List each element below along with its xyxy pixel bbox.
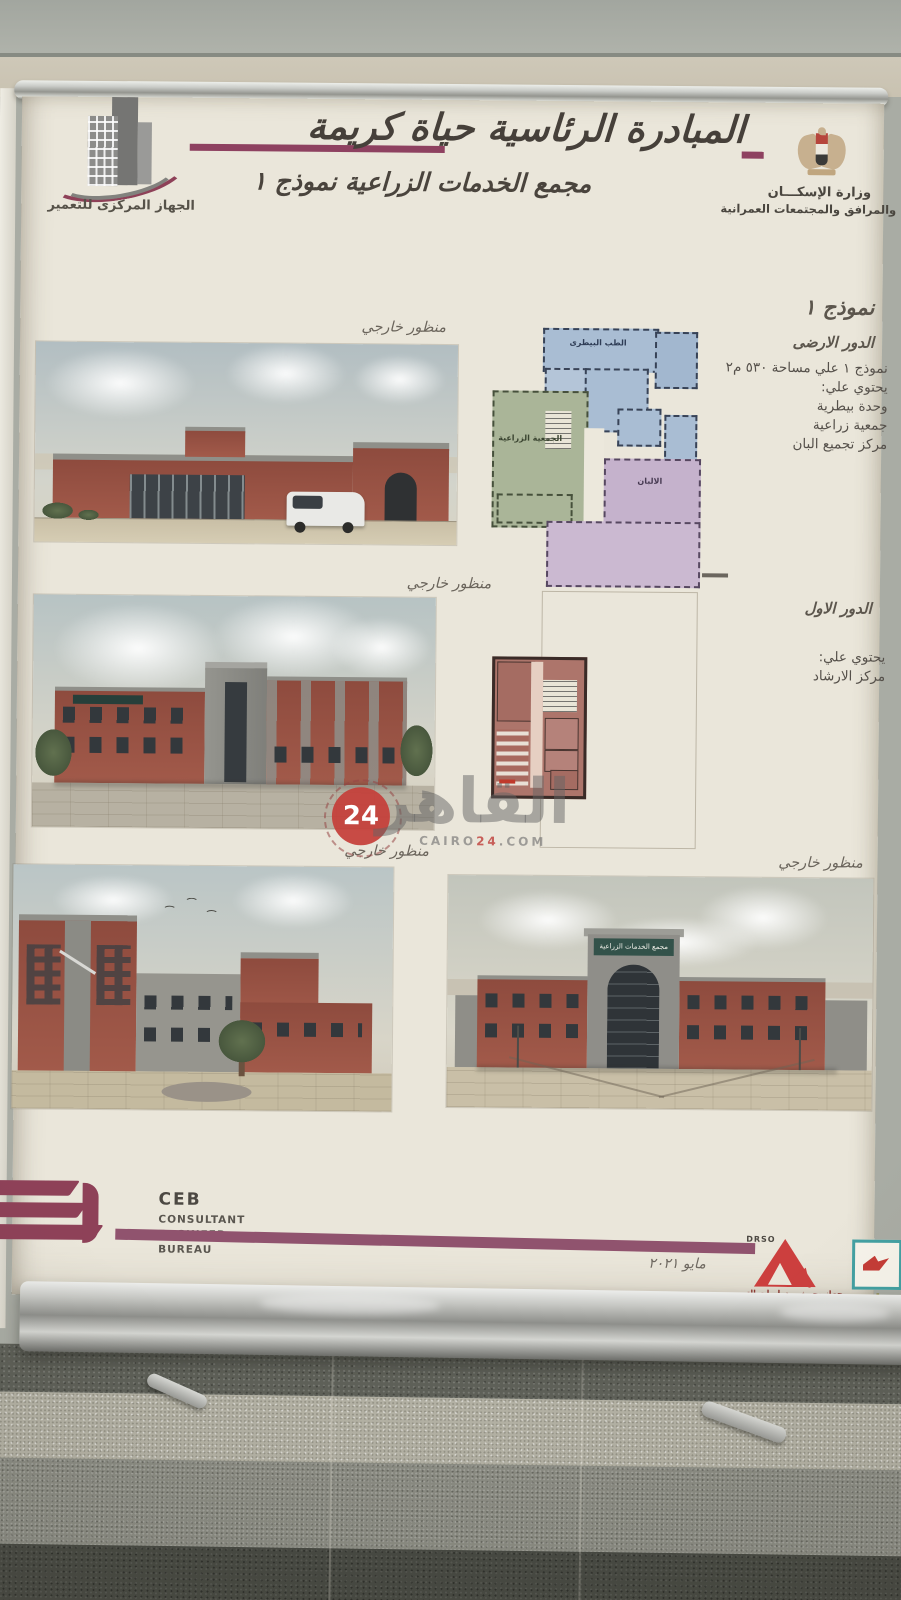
bird [205,910,218,918]
ministry-name-line1: وزارة الإسكـــان [744,185,894,201]
poster-subtitle: مجمع الخدمات الزراعية نموذج ١ [271,166,592,198]
building-sign: مجمع الخدمات الزراعية [594,938,674,956]
plan-stairs [545,411,571,449]
description-line: يحتوي علي: [738,378,888,398]
egypt-eagle-icon [793,127,849,183]
ministry-name-line2: والمرافق والمجتمعات العمرانية [732,201,896,216]
ground-floor-heading: الدور الارضى [780,333,874,352]
eagle-head [818,127,826,135]
plan-stairs [543,680,577,712]
first-floor-heading: الدور الاول [778,599,872,618]
plan-room [545,718,579,750]
plan-corridor [583,428,604,524]
domain-mid: 24 [476,834,499,848]
building-sign-band [73,695,143,705]
render-exterior-1 [34,341,458,545]
window-row [485,1023,579,1038]
cloud [233,872,353,929]
gate-arch [384,472,416,522]
plan-zone-veterinary [655,332,698,389]
render-exterior-4: مجمع الخدمات الزراعية [446,875,873,1111]
description-line: نموذج ١ علي مساحة ٥٣٠ م٢ [738,359,888,379]
poster-title: المبادرة الرئاسية حياة كريمة [414,106,747,152]
cloud [331,617,432,678]
description-line: وحدة بيطرية [737,397,887,417]
agency-name: الجهاز المركزى للتعمير [33,197,209,214]
description-line: يحتوي علي: [735,648,885,668]
hayah-bird-icon [863,1256,889,1271]
domain-left: CAIRO [419,834,476,848]
date: مايو ٢٠٢١ [635,1256,719,1273]
building-sign-text: مجمع الخدمات الزراعية [599,942,668,951]
ground-floor-plan: الطب البيطرى الجمعية الزراعية الالبان [484,315,698,587]
model-heading: نموذج ١ [786,295,874,320]
window-grid [96,945,131,1005]
perspective-label: منظور خارجي [761,855,879,872]
plan-zone-dairy [546,521,701,588]
cloud [354,354,446,405]
entrance-arch-glass [607,964,660,1068]
plan-label-veterinary: الطب البيطرى [558,338,638,348]
window-row [687,995,817,1010]
bird [163,906,176,914]
van-window [293,496,323,509]
plan-room [497,661,536,721]
agency-logo: الجهاز المركزى للتعمير [41,91,202,217]
window-grid [26,944,61,1004]
watermark-word: القاهر [392,764,571,839]
ceb-line3: BUREAU [158,1243,212,1255]
plan-zone-association [496,493,572,524]
bird [185,898,198,906]
window-row [687,1025,817,1040]
van-wheel [294,522,305,533]
window-row [274,746,398,763]
plan-zone-veterinary [543,328,659,373]
ground-floor-description: نموذج ١ علي مساحة ٥٣٠ م٢ يحتوي علي: وحدة… [737,359,888,455]
light-pole [799,1028,801,1070]
ceb-logo-icon [0,1178,131,1264]
description-line: مركز الارشاد [735,667,885,687]
photo-of-rollup-banner: الجهاز المركزى للتعمير المبادرة الرئاسية… [0,0,901,1600]
plan-label-dairy: الالبان [623,477,677,486]
window-row [62,737,196,754]
eagle-shield [816,133,828,165]
banner-base-roller [19,1281,901,1365]
drso-abbr: DRSO [746,1235,775,1244]
van-wheel [342,522,353,533]
ceb-line1: CONSULTANT [158,1213,245,1226]
stair-slot [64,921,91,1073]
hayah-logo-frame [852,1240,901,1290]
render-exterior-3 [11,864,393,1111]
cloud [226,343,347,404]
description-line: جمعية زراعية [737,416,887,436]
plan-label-association: الجمعية الزراعية [495,433,565,443]
tree [32,720,79,784]
ceb-stripe [82,1183,99,1243]
watermark-domain: CAIRO24.COM [398,834,568,849]
base-highlight [780,1303,890,1323]
window-row [485,993,579,1008]
end-pavilion [825,1000,868,1070]
plan-dash-mark [702,573,728,577]
title-rule-right [742,152,764,159]
light-pole [517,1026,519,1068]
perspective-label: منظور خارجي [346,319,461,336]
cloud [53,603,224,694]
shrub [74,508,102,522]
cloud [45,347,196,418]
tree [210,1012,275,1071]
description-line: مركز تجميع البان [737,435,887,455]
storefront-glass [130,474,245,519]
eagle-base [808,169,836,175]
shrub [36,499,78,521]
domain-right: .COM [499,834,547,848]
ceb-abbr: CEB [158,1189,201,1209]
roof-tower [185,431,245,458]
ceb-stripe [0,1202,88,1218]
window-row [144,995,232,1010]
ceb-stripe [0,1180,80,1196]
tower-glass [224,682,247,782]
base-highlight [260,1293,440,1316]
window-row [63,707,197,724]
plan-zone-veterinary [617,408,661,446]
first-floor-description: يحتوي علي: مركز الارشاد [735,648,885,687]
